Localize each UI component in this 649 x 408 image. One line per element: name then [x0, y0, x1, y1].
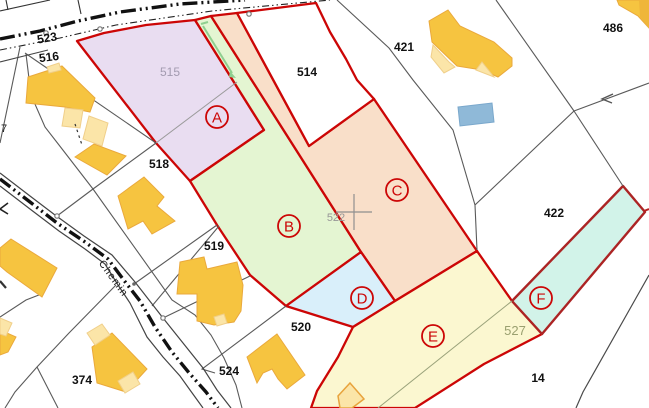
svg-text:421: 421: [394, 40, 414, 54]
svg-text:515: 515: [160, 65, 180, 79]
svg-text:C: C: [392, 183, 403, 200]
svg-text:527: 527: [504, 323, 526, 338]
svg-text:7: 7: [1, 123, 7, 135]
svg-text:520: 520: [291, 320, 311, 334]
svg-text:514: 514: [297, 65, 317, 79]
svg-text:518: 518: [149, 157, 169, 171]
svg-text:422: 422: [544, 206, 564, 220]
svg-text:D: D: [357, 291, 368, 308]
svg-text:14: 14: [531, 371, 545, 385]
svg-text:522: 522: [327, 212, 345, 224]
svg-text:B: B: [284, 219, 294, 236]
svg-text:A: A: [212, 110, 222, 127]
svg-text:F: F: [536, 291, 545, 308]
svg-text:374: 374: [72, 373, 92, 387]
svg-text:516: 516: [38, 49, 60, 65]
svg-text:E: E: [428, 329, 438, 346]
svg-text:524: 524: [219, 364, 239, 378]
svg-text:486: 486: [603, 21, 623, 35]
svg-text:519: 519: [204, 239, 224, 253]
